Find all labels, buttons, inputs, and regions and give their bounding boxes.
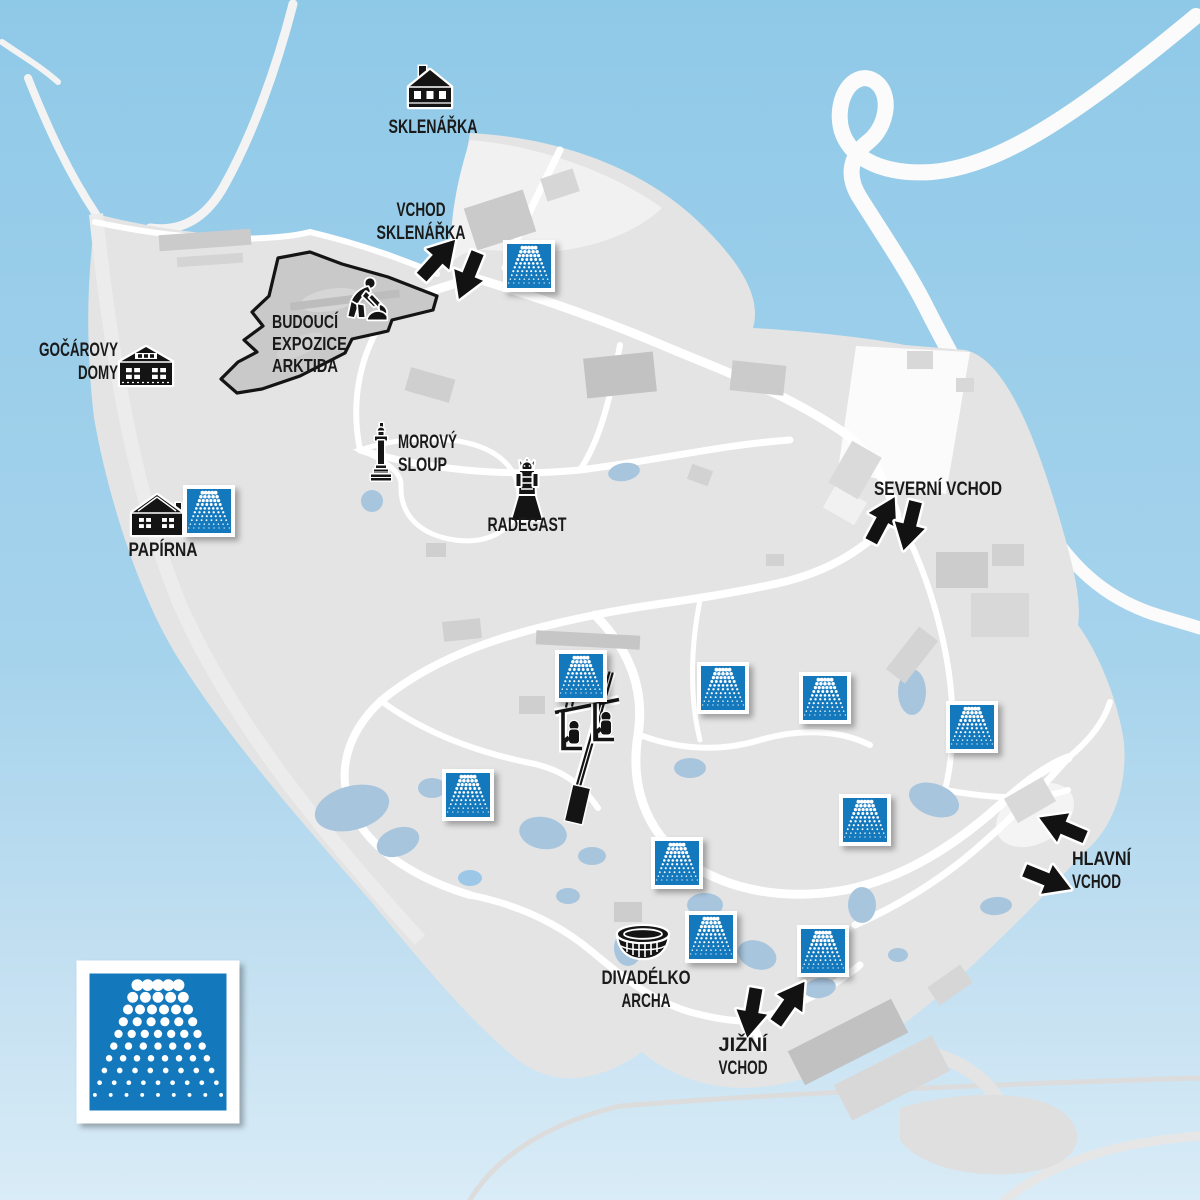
misting-station-icon xyxy=(839,794,891,846)
map-label-sklenarka: SKLENÁŘKA xyxy=(389,116,478,138)
misting-station-icon xyxy=(797,925,849,977)
zoo-map: SKLENÁŘKAVCHODSKLENÁŘKABUDOUCÍEXPOZICEAR… xyxy=(0,0,1200,1200)
misting-station-icon xyxy=(685,911,737,963)
misting-station-icon xyxy=(183,485,235,537)
misting-station-icon xyxy=(799,672,851,724)
misting-station-icon xyxy=(442,769,494,821)
misting-station-icon xyxy=(503,240,555,292)
misting-station-icon xyxy=(555,650,607,702)
misting-station-icon xyxy=(697,662,749,714)
map-label-severni-vchod: SEVERNÍ VCHOD xyxy=(874,478,1002,500)
map-label-papirna: PAPÍRNA xyxy=(129,539,198,561)
divadelko-archa-boat-icon xyxy=(618,926,668,958)
map-label-radegast: RADEGAST xyxy=(488,515,567,536)
misting-station-icon xyxy=(651,837,703,889)
misting-station-icon xyxy=(946,701,998,753)
map-label-budouci-expozice-arktida: BUDOUCÍEXPOZICEARKTIDA xyxy=(272,311,347,376)
misting-station-legend-icon xyxy=(77,961,240,1124)
